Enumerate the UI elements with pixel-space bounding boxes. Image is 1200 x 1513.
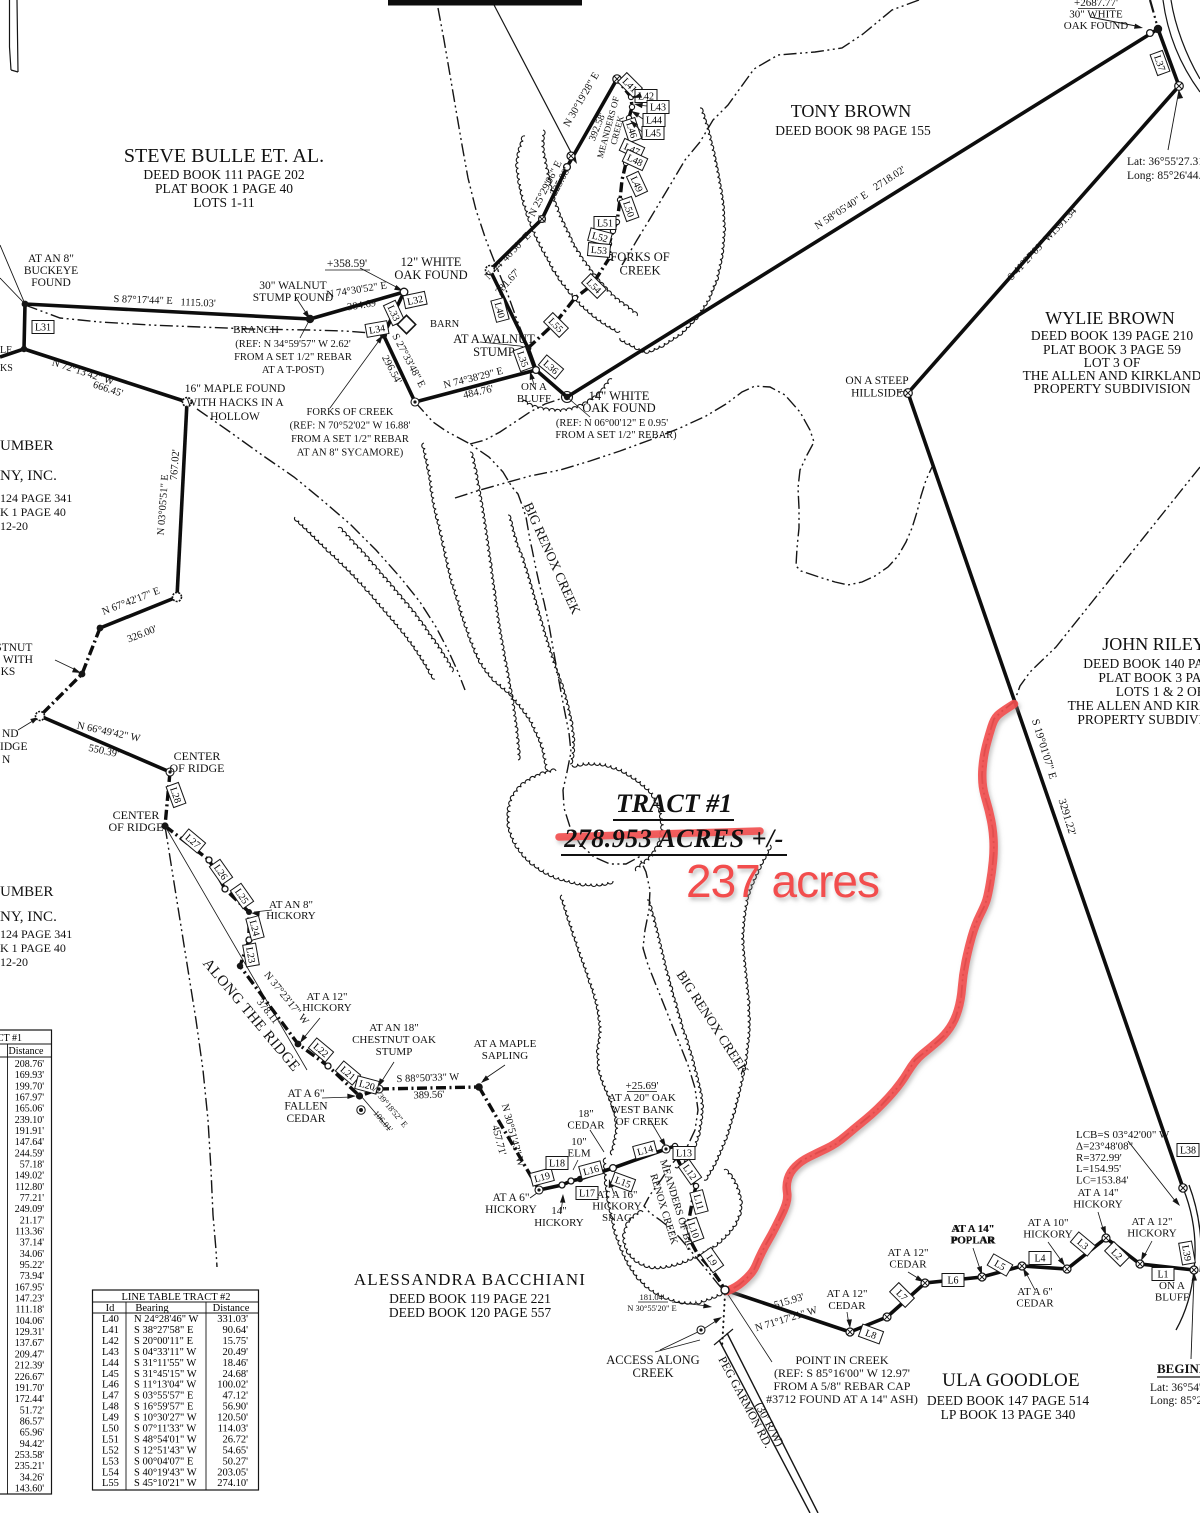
svg-text:ON A: ON A bbox=[521, 381, 547, 393]
svg-text:R=372.99': R=372.99' bbox=[1076, 1152, 1122, 1164]
svg-text:AT A T-POST): AT A T-POST) bbox=[262, 365, 325, 376]
svg-text:PROPERTY SUBDIVISION: PROPERTY SUBDIVISION bbox=[1077, 712, 1200, 727]
svg-text:BARN: BARN bbox=[430, 319, 460, 330]
svg-text:DEED BOOK 120 PAGE 557: DEED BOOK 120 PAGE 557 bbox=[389, 1305, 552, 1320]
svg-text:HICKORY: HICKORY bbox=[592, 1201, 642, 1213]
svg-text:DEED BOOK 147 PAGE 514: DEED BOOK 147 PAGE 514 bbox=[927, 1393, 1090, 1408]
svg-text:65.96': 65.96' bbox=[20, 1428, 45, 1439]
svg-text:THE ALLEN AND KIRKLAND: THE ALLEN AND KIRKLAND bbox=[1068, 698, 1200, 713]
svg-text:12-20: 12-20 bbox=[0, 955, 28, 969]
svg-text:KS: KS bbox=[0, 363, 13, 374]
svg-text:113.36': 113.36' bbox=[15, 1227, 44, 1238]
svg-text:L18: L18 bbox=[549, 1159, 565, 1170]
svg-text:16" MAPLE FOUND: 16" MAPLE FOUND bbox=[185, 383, 286, 395]
svg-text:CEDAR: CEDAR bbox=[1016, 1298, 1054, 1310]
svg-text:30" WALNUT: 30" WALNUT bbox=[259, 280, 326, 292]
svg-text:389.56': 389.56' bbox=[413, 1089, 444, 1101]
svg-text:SAPLING: SAPLING bbox=[482, 1050, 529, 1062]
svg-text:111.18': 111.18' bbox=[15, 1305, 44, 1316]
svg-text:Δ=23°48'08": Δ=23°48'08" bbox=[1076, 1140, 1133, 1152]
svg-text:S 00°04'07" E: S 00°04'07" E bbox=[134, 1456, 193, 1467]
svg-text:767.02': 767.02' bbox=[169, 449, 182, 481]
svg-text:20.49': 20.49' bbox=[222, 1347, 248, 1358]
svg-text:LOTS 1 & 2 OF: LOTS 1 & 2 OF bbox=[1116, 684, 1200, 699]
svg-text:CEDAR: CEDAR bbox=[567, 1120, 605, 1132]
svg-text:STUMP: STUMP bbox=[473, 345, 515, 359]
svg-text:L48: L48 bbox=[102, 1402, 119, 1413]
svg-text:AT A 14": AT A 14" bbox=[1078, 1187, 1119, 1199]
svg-text:10": 10" bbox=[571, 1136, 587, 1148]
svg-text:OAK FOUND: OAK FOUND bbox=[394, 268, 467, 282]
svg-text:TONY BROWN: TONY BROWN bbox=[791, 101, 912, 121]
svg-text:209.47': 209.47' bbox=[15, 1349, 45, 1360]
svg-text:L51: L51 bbox=[102, 1435, 119, 1446]
svg-text:L43: L43 bbox=[102, 1347, 119, 1358]
svg-text:NY, INC.: NY, INC. bbox=[0, 468, 57, 484]
svg-text:OAK FOUND: OAK FOUND bbox=[582, 401, 655, 415]
svg-text:BEGINNING: BEGINNING bbox=[1157, 1361, 1200, 1376]
svg-text:129.31': 129.31' bbox=[15, 1327, 45, 1338]
svg-text:UMBER: UMBER bbox=[0, 438, 53, 454]
svg-text:OAK FOUND: OAK FOUND bbox=[1064, 20, 1129, 32]
svg-text:181.04': 181.04' bbox=[640, 1292, 665, 1302]
svg-text:JOHN RILEY: JOHN RILEY bbox=[1102, 634, 1200, 654]
svg-text:"CHESTNUT: "CHESTNUT bbox=[0, 642, 32, 654]
svg-text:12-20: 12-20 bbox=[0, 519, 28, 533]
svg-text:CREEK: CREEK bbox=[633, 1366, 674, 1380]
svg-text:AT AN 8" SYCAMORE): AT AN 8" SYCAMORE) bbox=[297, 448, 404, 459]
svg-text:LINE TABLE TRACT #1: LINE TABLE TRACT #1 bbox=[0, 1033, 22, 1044]
svg-text:S 10°30'27" W: S 10°30'27" W bbox=[134, 1413, 197, 1424]
svg-text:HICKORY: HICKORY bbox=[534, 1217, 584, 1229]
svg-text:HICKORY: HICKORY bbox=[266, 910, 316, 922]
svg-text:54.65': 54.65' bbox=[222, 1445, 248, 1456]
svg-text:37.14': 37.14' bbox=[20, 1238, 45, 1249]
svg-text:51.72': 51.72' bbox=[20, 1405, 45, 1416]
svg-text:HICKORY: HICKORY bbox=[1127, 1228, 1177, 1240]
svg-text:L17: L17 bbox=[579, 1189, 595, 1200]
svg-text:77.21': 77.21' bbox=[20, 1193, 45, 1204]
svg-text:212.39': 212.39' bbox=[15, 1361, 45, 1372]
svg-text:LINE TABLE TRACT #2: LINE TABLE TRACT #2 bbox=[121, 1292, 230, 1303]
svg-text:L53: L53 bbox=[102, 1456, 119, 1467]
svg-text:21.17': 21.17' bbox=[20, 1215, 45, 1226]
svg-text:L43: L43 bbox=[650, 103, 666, 114]
svg-text:IDGE: IDGE bbox=[0, 741, 27, 753]
svg-text:86.57': 86.57' bbox=[20, 1416, 45, 1427]
svg-text:12" WHITE: 12" WHITE bbox=[401, 255, 462, 269]
svg-text:AT A 6": AT A 6" bbox=[492, 1192, 529, 1204]
svg-text:S 40°19'43" W: S 40°19'43" W bbox=[134, 1467, 197, 1478]
svg-text:165.06': 165.06' bbox=[15, 1104, 45, 1115]
svg-text:WEST BANK: WEST BANK bbox=[610, 1104, 674, 1116]
svg-text:LCB=S 03°42'00" W: LCB=S 03°42'00" W bbox=[1076, 1129, 1170, 1141]
svg-text:Lat: 36°55'27.310": Lat: 36°55'27.310" bbox=[1127, 156, 1200, 168]
svg-text:203.05': 203.05' bbox=[217, 1467, 248, 1478]
svg-text:S 31°11'55" W: S 31°11'55" W bbox=[134, 1358, 196, 1369]
svg-text:STEVE BULLE ET. AL.: STEVE BULLE ET. AL. bbox=[124, 145, 324, 167]
svg-text:AT AN 8": AT AN 8" bbox=[28, 253, 74, 265]
svg-text:167.95': 167.95' bbox=[15, 1282, 45, 1293]
svg-text:STUMP FOUND: STUMP FOUND bbox=[253, 292, 333, 304]
svg-text:HICKORY: HICKORY bbox=[1073, 1199, 1123, 1211]
svg-text:237 acres: 237 acres bbox=[686, 855, 879, 907]
svg-text:Distance: Distance bbox=[9, 1046, 45, 1057]
svg-text:Id: Id bbox=[106, 1303, 115, 1314]
svg-text:DEED BOOK 140 PAGE 34: DEED BOOK 140 PAGE 34 bbox=[1083, 656, 1200, 671]
svg-text:56.90': 56.90' bbox=[222, 1402, 248, 1413]
svg-text:CEDAR: CEDAR bbox=[828, 1300, 866, 1312]
svg-text:104.06': 104.06' bbox=[15, 1316, 45, 1327]
svg-text:L41: L41 bbox=[102, 1325, 119, 1336]
svg-text:73.94': 73.94' bbox=[20, 1271, 45, 1282]
svg-text:169.93': 169.93' bbox=[15, 1070, 45, 1081]
svg-text:L44: L44 bbox=[102, 1358, 120, 1369]
svg-text:14": 14" bbox=[551, 1205, 567, 1217]
svg-text:L6: L6 bbox=[947, 1276, 958, 1287]
svg-text:ON A: ON A bbox=[1159, 1280, 1185, 1292]
svg-text:(REF: S 85°16'00" W 12.97': (REF: S 85°16'00" W 12.97' bbox=[774, 1366, 910, 1380]
svg-text:FORKS OF CREEK: FORKS OF CREEK bbox=[307, 407, 394, 418]
svg-text:ND: ND bbox=[2, 728, 19, 740]
svg-text:S 88°50'33" W: S 88°50'33" W bbox=[396, 1072, 459, 1085]
svg-text:FALLEN: FALLEN bbox=[284, 1101, 328, 1113]
svg-text:L51: L51 bbox=[597, 219, 613, 230]
svg-text:FROM A SET 1/2" REBAR: FROM A SET 1/2" REBAR bbox=[234, 352, 352, 363]
svg-text:57.18': 57.18' bbox=[20, 1160, 45, 1171]
svg-text:L54: L54 bbox=[102, 1467, 120, 1478]
svg-text:149.02': 149.02' bbox=[15, 1171, 45, 1182]
svg-text:191.70': 191.70' bbox=[15, 1383, 45, 1394]
svg-text:143.60': 143.60' bbox=[15, 1484, 45, 1495]
svg-text:AT A 12": AT A 12" bbox=[827, 1288, 868, 1300]
svg-text:POINT IN CREEK: POINT IN CREEK bbox=[795, 1353, 888, 1367]
svg-text:UMBER: UMBER bbox=[0, 884, 53, 900]
svg-text:L45: L45 bbox=[645, 129, 661, 140]
svg-text:191.91': 191.91' bbox=[15, 1126, 45, 1137]
svg-text:18.46': 18.46' bbox=[222, 1358, 248, 1369]
svg-text:94.42': 94.42' bbox=[20, 1439, 45, 1450]
svg-text:LE: LE bbox=[0, 345, 12, 356]
svg-text:WYLIE BROWN: WYLIE BROWN bbox=[1045, 308, 1174, 328]
svg-text:FROM A SET 1/2" REBAR): FROM A SET 1/2" REBAR) bbox=[555, 430, 677, 441]
svg-text:AT A 6": AT A 6" bbox=[287, 1088, 324, 1100]
svg-text:AT A 12": AT A 12" bbox=[1132, 1216, 1173, 1228]
svg-text:S 20°00'11" E: S 20°00'11" E bbox=[134, 1336, 193, 1347]
svg-text:#3712 FOUND AT A 14" ASH): #3712 FOUND AT A 14" ASH) bbox=[766, 1392, 918, 1406]
svg-text:30" WHITE: 30" WHITE bbox=[1069, 9, 1123, 21]
svg-text:S 31°45'15" W: S 31°45'15" W bbox=[134, 1369, 197, 1380]
svg-text:WITH HACKS IN A: WITH HACKS IN A bbox=[186, 397, 284, 409]
svg-text:BLUFF: BLUFF bbox=[1155, 1292, 1189, 1304]
svg-text:(REF: N 06°00'12" E 0.95': (REF: N 06°00'12" E 0.95' bbox=[556, 418, 668, 429]
svg-text:124 PAGE 341: 124 PAGE 341 bbox=[0, 491, 72, 505]
svg-text:N: N bbox=[2, 754, 11, 766]
svg-text:AT A 14": AT A 14" bbox=[951, 1223, 995, 1235]
svg-text:34.06': 34.06' bbox=[20, 1249, 45, 1260]
svg-text:L50: L50 bbox=[102, 1424, 119, 1435]
svg-text:L49: L49 bbox=[102, 1413, 119, 1424]
svg-text:239.10': 239.10' bbox=[15, 1115, 45, 1126]
svg-text:47.12': 47.12' bbox=[222, 1391, 248, 1402]
svg-text:DEED BOOK 98 PAGE 155: DEED BOOK 98 PAGE 155 bbox=[775, 123, 931, 138]
svg-text:AT A 20" OAK: AT A 20" OAK bbox=[608, 1092, 676, 1104]
svg-text:HICKORY: HICKORY bbox=[485, 1204, 537, 1216]
svg-text:ON A STEEP: ON A STEEP bbox=[845, 375, 908, 387]
svg-text:L46: L46 bbox=[102, 1380, 119, 1391]
svg-text:OF CREEK: OF CREEK bbox=[616, 1116, 669, 1128]
svg-text:249.09': 249.09' bbox=[15, 1204, 45, 1215]
svg-text:278.953 ACRES +/-: 278.953 ACRES +/- bbox=[563, 824, 784, 853]
svg-text:HICKORY: HICKORY bbox=[302, 1002, 352, 1014]
svg-text:(REF: N 70°52'02" W 16.88': (REF: N 70°52'02" W 16.88' bbox=[290, 421, 411, 432]
svg-text:ACKS: ACKS bbox=[0, 666, 15, 678]
svg-text:114.03': 114.03' bbox=[218, 1424, 248, 1435]
svg-text:+25.69': +25.69' bbox=[626, 1080, 659, 1092]
svg-text:OF RIDGE: OF RIDGE bbox=[169, 761, 224, 775]
svg-text:(REF: N 34°59'57" W 2.62': (REF: N 34°59'57" W 2.62' bbox=[235, 339, 351, 350]
svg-text:24.68': 24.68' bbox=[222, 1369, 248, 1380]
svg-text:HILLSIDE: HILLSIDE bbox=[851, 388, 903, 400]
svg-text:L4: L4 bbox=[1034, 1254, 1045, 1265]
svg-text:NY, INC.: NY, INC. bbox=[0, 909, 57, 925]
svg-text:90.64': 90.64' bbox=[222, 1325, 248, 1336]
svg-text:100.02': 100.02' bbox=[217, 1380, 248, 1391]
svg-text:120.50': 120.50' bbox=[217, 1413, 248, 1424]
svg-text:AT A MAPLE: AT A MAPLE bbox=[474, 1038, 537, 1050]
svg-text:L31: L31 bbox=[35, 323, 51, 334]
svg-text:S 87°17'44" E: S 87°17'44" E bbox=[113, 294, 173, 307]
svg-text:95.22': 95.22' bbox=[20, 1260, 45, 1271]
svg-text:26.72': 26.72' bbox=[222, 1435, 248, 1446]
svg-text:Distance: Distance bbox=[213, 1303, 250, 1314]
svg-text:S 45°10'21" W: S 45°10'21" W bbox=[134, 1478, 197, 1489]
svg-text:172.44': 172.44' bbox=[15, 1394, 45, 1405]
svg-text:L=154.95': L=154.95' bbox=[1076, 1163, 1121, 1175]
svg-text:N 24°28'46" W: N 24°28'46" W bbox=[134, 1314, 199, 1325]
svg-text:PROPERTY SUBDIVISION: PROPERTY SUBDIVISION bbox=[1033, 381, 1191, 396]
svg-text:L1: L1 bbox=[1157, 1270, 1168, 1281]
svg-text:L55: L55 bbox=[102, 1478, 119, 1489]
svg-text:K 1 PAGE 40: K 1 PAGE 40 bbox=[0, 505, 66, 519]
svg-text:LP BOOK 13 PAGE 340: LP BOOK 13 PAGE 340 bbox=[941, 1407, 1076, 1422]
svg-text:CHESTNUT OAK: CHESTNUT OAK bbox=[352, 1034, 436, 1046]
svg-text:226.67': 226.67' bbox=[15, 1372, 45, 1383]
svg-text:L52: L52 bbox=[102, 1445, 119, 1456]
svg-text:N 30°55'20" E: N 30°55'20" E bbox=[627, 1303, 676, 1313]
svg-text:S 48°54'01" W: S 48°54'01" W bbox=[134, 1435, 197, 1446]
svg-text:L38: L38 bbox=[1180, 1146, 1196, 1157]
svg-text:CREEK: CREEK bbox=[620, 264, 661, 278]
svg-text:ALESSANDRA BACCHIANI: ALESSANDRA BACCHIANI bbox=[354, 1270, 586, 1289]
svg-text:OF RIDGE: OF RIDGE bbox=[108, 820, 163, 834]
svg-text:137.67': 137.67' bbox=[15, 1338, 45, 1349]
svg-text:DEED BOOK 111 PAGE 202: DEED BOOK 111 PAGE 202 bbox=[143, 167, 304, 182]
svg-text:BUCKEYE: BUCKEYE bbox=[24, 265, 78, 277]
svg-text:SNAG: SNAG bbox=[602, 1212, 632, 1224]
svg-text:274.10': 274.10' bbox=[217, 1478, 248, 1489]
svg-text:147.23': 147.23' bbox=[15, 1294, 45, 1305]
svg-text:AT A 16": AT A 16" bbox=[597, 1189, 638, 1201]
svg-text:S 04°33'11" W: S 04°33'11" W bbox=[134, 1347, 196, 1358]
svg-text:L47: L47 bbox=[102, 1391, 119, 1402]
svg-text:331.03': 331.03' bbox=[217, 1314, 248, 1325]
svg-text:Long: 85°26'44.824: Long: 85°26'44.824 bbox=[1127, 170, 1200, 182]
svg-text:L53: L53 bbox=[590, 245, 607, 257]
svg-text:PLAT BOOK 1 PAGE 40: PLAT BOOK 1 PAGE 40 bbox=[155, 181, 293, 196]
svg-text:34.26': 34.26' bbox=[20, 1472, 45, 1483]
svg-text:18": 18" bbox=[578, 1108, 594, 1120]
svg-text:S 12°51'43" W: S 12°51'43" W bbox=[134, 1445, 197, 1456]
svg-text:OUND WITH: OUND WITH bbox=[0, 654, 33, 666]
svg-text:L40: L40 bbox=[102, 1314, 119, 1325]
svg-text:POPLAR: POPLAR bbox=[950, 1235, 996, 1247]
svg-text:+358.59': +358.59' bbox=[327, 258, 367, 270]
svg-text:208.76': 208.76' bbox=[15, 1059, 45, 1070]
svg-text:AT A 10": AT A 10" bbox=[1028, 1217, 1069, 1229]
svg-text:DEED BOOK 119 PAGE 221: DEED BOOK 119 PAGE 221 bbox=[389, 1291, 551, 1306]
svg-text:AT A WALNUT: AT A WALNUT bbox=[453, 332, 535, 346]
svg-text:147.64': 147.64' bbox=[15, 1137, 45, 1148]
svg-text:TRACT #1: TRACT #1 bbox=[616, 789, 732, 818]
svg-text:AT A 6": AT A 6" bbox=[1017, 1286, 1052, 1298]
svg-text:FOUND: FOUND bbox=[31, 277, 71, 289]
svg-text:BRANCH: BRANCH bbox=[233, 324, 279, 336]
svg-text:S 38°27'58" E: S 38°27'58" E bbox=[134, 1325, 193, 1336]
svg-text:S 11°13'04" W: S 11°13'04" W bbox=[134, 1380, 196, 1391]
svg-text:S 07°11'33" W: S 07°11'33" W bbox=[134, 1424, 196, 1435]
svg-text:PLAT BOOK 3 PAGE 5: PLAT BOOK 3 PAGE 5 bbox=[1098, 670, 1200, 685]
svg-text:50.27': 50.27' bbox=[222, 1456, 248, 1467]
svg-text:Long: 85°26': Long: 85°26' bbox=[1150, 1395, 1200, 1407]
svg-text:ELM: ELM bbox=[567, 1148, 590, 1160]
svg-text:15.75': 15.75' bbox=[222, 1336, 248, 1347]
svg-text:FORKS OF: FORKS OF bbox=[610, 250, 669, 264]
svg-text:FROM A SET 1/2" REBAR: FROM A SET 1/2" REBAR bbox=[291, 434, 409, 445]
svg-text:CEDAR: CEDAR bbox=[287, 1113, 326, 1125]
svg-text:124 PAGE 341: 124 PAGE 341 bbox=[0, 927, 72, 941]
svg-text:Bearing: Bearing bbox=[135, 1303, 169, 1314]
svg-text:AT A 12": AT A 12" bbox=[888, 1247, 929, 1259]
svg-text:Lat: 36°54'41: Lat: 36°54'41 bbox=[1150, 1382, 1200, 1394]
svg-text:HICKORY: HICKORY bbox=[1023, 1229, 1073, 1241]
svg-text:S 16°59'57" E: S 16°59'57" E bbox=[134, 1402, 193, 1413]
svg-text:ULA GOODLOE: ULA GOODLOE bbox=[942, 1370, 1080, 1391]
svg-text:HOLLOW: HOLLOW bbox=[210, 411, 260, 423]
svg-text:S 03°55'57" E: S 03°55'57" E bbox=[134, 1391, 193, 1402]
svg-text:253.58': 253.58' bbox=[15, 1450, 45, 1461]
svg-text:L45: L45 bbox=[102, 1369, 119, 1380]
svg-text:K 1 PAGE 40: K 1 PAGE 40 bbox=[0, 941, 66, 955]
svg-text:DEED BOOK 139 PAGE 210: DEED BOOK 139 PAGE 210 bbox=[1031, 328, 1194, 343]
svg-text:LC=153.84': LC=153.84' bbox=[1076, 1175, 1129, 1187]
svg-text:199.70': 199.70' bbox=[15, 1081, 45, 1092]
svg-text:AT AN 18": AT AN 18" bbox=[369, 1022, 419, 1034]
svg-text:112.80': 112.80' bbox=[15, 1182, 44, 1193]
svg-text:CEDAR: CEDAR bbox=[889, 1259, 927, 1271]
svg-text:BLUFF: BLUFF bbox=[517, 393, 551, 405]
svg-text:ACCESS ALONG: ACCESS ALONG bbox=[606, 1353, 699, 1367]
svg-text:L42: L42 bbox=[102, 1336, 119, 1347]
svg-text:L13: L13 bbox=[676, 1149, 692, 1160]
svg-text:1115.03': 1115.03' bbox=[180, 297, 216, 309]
svg-text:L44: L44 bbox=[646, 116, 662, 127]
svg-text:STUMP: STUMP bbox=[376, 1046, 413, 1058]
svg-text:244.59': 244.59' bbox=[15, 1148, 45, 1159]
svg-text:FROM A 5/8" REBAR CAP: FROM A 5/8" REBAR CAP bbox=[774, 1379, 911, 1393]
svg-text:235.21': 235.21' bbox=[15, 1461, 45, 1472]
svg-text:LOTS 1-11: LOTS 1-11 bbox=[193, 195, 254, 210]
svg-text:167.97': 167.97' bbox=[15, 1093, 45, 1104]
